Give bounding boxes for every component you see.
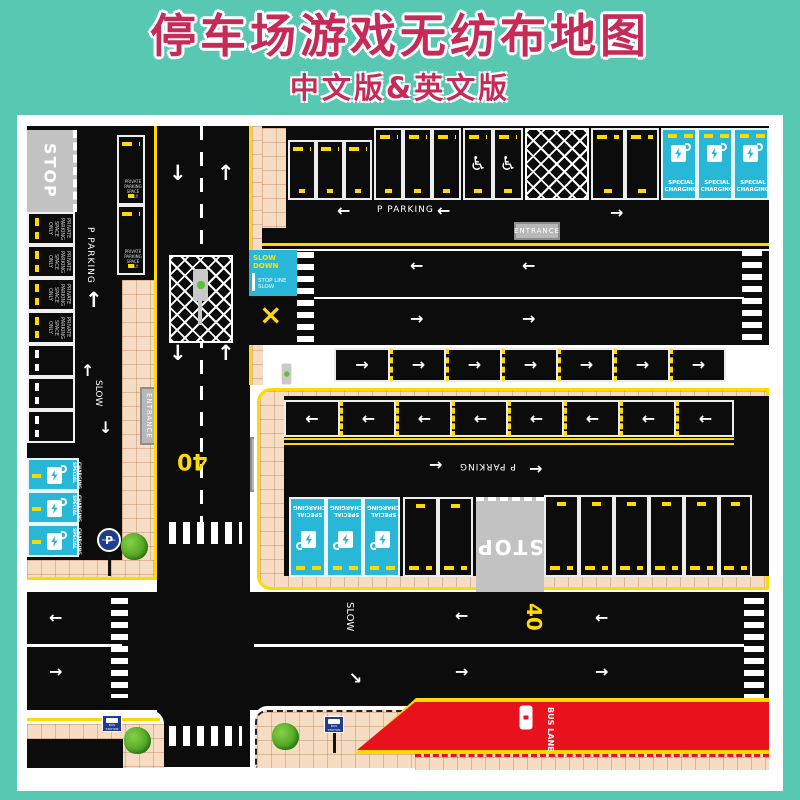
- slow-down-label: SLOW DOWN: [253, 254, 297, 270]
- parking-space: ←: [396, 400, 452, 437]
- parking-space: ←: [564, 400, 620, 437]
- page: { "header": { "title": "停车场游戏无纺布地图", "su…: [0, 0, 800, 800]
- parking-space: ←: [676, 400, 734, 437]
- lane-arrow: →: [355, 357, 368, 373]
- parking-space: PRIVATE PARKING SPACE ONLY: [117, 205, 145, 275]
- wheelchair-icon: ♿: [469, 153, 486, 175]
- parking-space: [374, 128, 403, 200]
- lane-arrow: ←: [522, 258, 535, 274]
- private-parking-label: PRIVATE PARKING SPACE ONLY: [47, 216, 71, 242]
- parking-space: ←: [340, 400, 396, 437]
- parking-space: →: [558, 348, 614, 382]
- lane-arrow: →: [580, 357, 593, 373]
- charging-label: SPECIALCHARGING: [328, 503, 365, 517]
- ev-charger-icon: [301, 531, 316, 548]
- header: 停车场游戏无纺布地图 中文版&英文版: [0, 10, 800, 107]
- stop-zone: STOP: [27, 130, 77, 212]
- charging-space: SPECIALCHARGING: [733, 128, 769, 200]
- curb: [27, 710, 164, 724]
- bus-station-sign: BUS STATION: [102, 715, 122, 732]
- entrance-label: ENTRANCE: [145, 393, 153, 439]
- bottom-road: [27, 592, 769, 710]
- parking-map: STOP PRIVATE PARKING SPACE ONLY PRIVATE …: [17, 115, 783, 791]
- parking-space: [288, 140, 316, 200]
- page-title: 停车场游戏无纺布地图: [0, 10, 800, 63]
- lane-arrow: ↑: [217, 163, 235, 184]
- zebra-crossing: [169, 522, 242, 544]
- parking-space: ←: [284, 400, 340, 437]
- parking-road-marking: P PARKING: [377, 205, 434, 215]
- lane-arrow: ↑: [217, 343, 235, 364]
- ev-charger-icon: [338, 531, 353, 548]
- lane-arrow: ↓: [169, 343, 187, 364]
- slow-marking: SLOW: [93, 380, 103, 406]
- lane-arrow: ←: [642, 411, 655, 427]
- charging-label: SPECIALCHARGING: [365, 503, 402, 517]
- parking-space: →: [670, 348, 726, 382]
- parking-space: [27, 377, 75, 410]
- charging-space: SPECIALCHARGING: [697, 128, 733, 200]
- ev-charger-icon: [707, 145, 722, 162]
- ev-charger-icon: [47, 500, 62, 517]
- curb-line: [27, 718, 160, 721]
- space-dash: [32, 507, 44, 511]
- lane-arrow: →: [429, 457, 442, 473]
- zebra-crossing: [742, 250, 762, 378]
- lane-arrow: ←: [305, 411, 318, 427]
- lane-arrow: ←: [437, 203, 450, 219]
- bus-lane: [357, 702, 769, 750]
- parking-space: [591, 128, 625, 200]
- crosshatch-area: [525, 128, 589, 200]
- stop-line-slow-label: STOP LINE SLOW: [258, 278, 297, 290]
- lane-arrow: ↑: [85, 290, 103, 311]
- lane-divider: [314, 297, 744, 299]
- parking-sign: PPARKING: [97, 528, 121, 576]
- parking-space: [27, 410, 75, 443]
- road-edge-line: [154, 126, 157, 577]
- space-dash: [32, 474, 44, 478]
- parking-space: PRIVATE PARKING SPACE ONLY: [27, 278, 75, 311]
- bus-station-label: BUS STATION: [325, 724, 343, 732]
- charging-label: SPECIALCHARGING: [291, 503, 328, 517]
- parking-space: [344, 140, 372, 200]
- traffic-light-pole: [198, 301, 202, 325]
- private-parking-label: PRIVATE PARKING SPACE ONLY: [121, 249, 145, 269]
- lane-arrow: →: [455, 664, 468, 680]
- parking-sign-word: PARKING: [102, 538, 115, 542]
- charging-space: SPECIALCHARGING: [326, 497, 363, 577]
- lane-arrow: ←: [337, 203, 350, 219]
- ev-charger-icon: [47, 533, 62, 550]
- space-dash: [296, 566, 323, 570]
- traffic-light: [193, 269, 208, 301]
- parking-space: [432, 128, 461, 200]
- lane-arrow: ↓: [169, 163, 187, 184]
- wheelchair-space: ♿: [463, 128, 493, 200]
- parking-space: PRIVATE PARKING SPACE ONLY: [27, 245, 75, 278]
- lane-arrow: ←: [530, 411, 543, 427]
- parking-space: [649, 495, 684, 577]
- tree: [124, 727, 151, 754]
- lane-arrow: ←: [586, 411, 599, 427]
- sidewalk: [262, 128, 286, 228]
- lane-arrow: ←: [418, 411, 431, 427]
- slow-marking: SLOW: [344, 602, 355, 631]
- parking-space: [27, 344, 75, 377]
- space-dash: [370, 566, 397, 570]
- lot-line: [284, 438, 734, 440]
- zebra-crossing: [111, 598, 128, 698]
- ev-charger-icon: [375, 531, 390, 548]
- parking-space: [316, 140, 344, 200]
- parking-space: [719, 495, 752, 577]
- sidewalk: [27, 560, 157, 577]
- lane-arrow: →: [610, 205, 623, 221]
- no-stopping-x-marking: ×: [259, 301, 282, 329]
- zebra-crossing: [297, 252, 314, 377]
- charging-label: CHARGING: [75, 528, 81, 555]
- lane-arrow: →: [529, 461, 542, 477]
- lane-arrow: →: [524, 357, 537, 373]
- parking-space: PRIVATE PARKING SPACE ONLY: [117, 135, 145, 205]
- zebra-crossing: [744, 598, 764, 703]
- lane-divider: [27, 644, 122, 647]
- bus-icon: [520, 706, 533, 730]
- charging-space: SPECIALCHARGING: [289, 497, 326, 577]
- parking-space: →: [446, 348, 502, 382]
- private-parking-label: PRIVATE PARKING SPACE ONLY: [47, 249, 71, 275]
- side-area: [27, 739, 123, 768]
- wheelchair-space: ♿: [493, 128, 523, 200]
- lane-arrow: ←: [699, 411, 712, 427]
- road-edge-line: [262, 249, 769, 251]
- stop-zone: STOP: [476, 497, 544, 593]
- charging-label: CHARGING: [75, 462, 81, 489]
- private-parking-label: PRIVATE PARKING SPACE ONLY: [121, 179, 145, 199]
- lane-arrow: ←: [455, 608, 468, 624]
- parking-space: [625, 128, 659, 200]
- parking-space: →: [502, 348, 558, 382]
- parking-space: [684, 495, 719, 577]
- zebra-crossing: [169, 726, 242, 746]
- lane-arrow: →: [692, 357, 705, 373]
- lane-arrow: →: [522, 311, 535, 327]
- parking-space: →: [334, 348, 390, 382]
- space-dash: [32, 540, 44, 544]
- space-dash: [668, 134, 694, 138]
- bus-lane-label: BUS LANE: [545, 707, 556, 752]
- lane-arrow: →: [49, 664, 62, 680]
- lane-arrow: →: [595, 664, 608, 680]
- charging-label: SPECIALCHARGING: [663, 180, 699, 194]
- space-dash: [740, 134, 766, 138]
- parking-space: [403, 497, 438, 577]
- lane-arrow: ←: [49, 610, 62, 626]
- lane-arrow: →: [636, 357, 649, 373]
- charging-space: SPECIALCHARGING: [363, 497, 400, 577]
- sidewalk: [415, 754, 769, 770]
- wheelchair-icon: ♿: [499, 153, 516, 175]
- charging-space: SPECIAL CHARGING: [27, 458, 79, 491]
- curb-line: [27, 577, 157, 580]
- space-dash: [704, 134, 730, 138]
- charging-space: SPECIAL CHARGING: [27, 524, 79, 557]
- ev-charger-icon: [743, 145, 758, 162]
- lane-divider: [254, 644, 744, 647]
- speed-limit-marking: 40: [522, 603, 546, 631]
- tree: [121, 533, 148, 560]
- lane-arrow: ←: [410, 258, 423, 274]
- parking-space: [544, 495, 579, 577]
- parking-road-marking: P PARKING: [85, 227, 95, 284]
- hatched-box: [169, 255, 233, 343]
- stop-zone-label: STOP: [476, 535, 544, 559]
- charging-label: CHARGING: [75, 495, 81, 522]
- lane-arrow: →: [412, 357, 425, 373]
- entrance-label: ENTRANCE: [514, 227, 560, 235]
- parking-space: →: [614, 348, 670, 382]
- private-parking-label: PRIVATE PARKING SPACE ONLY: [47, 282, 71, 308]
- lane-arrow: ↑: [81, 363, 94, 379]
- parking-space: PRIVATE PARKING SPACE ONLY: [27, 311, 75, 344]
- speed-limit-marking: 40: [177, 448, 208, 473]
- parking-space: [614, 495, 649, 577]
- entrance-sign: ENTRANCE: [514, 222, 560, 240]
- lane-arrow: ↓: [99, 420, 112, 436]
- lane-arrow: →: [410, 311, 423, 327]
- sign-post: [333, 733, 336, 753]
- road-edge-line: [262, 243, 769, 246]
- lane-arrow: ←: [474, 411, 487, 427]
- traffic-light: [282, 364, 292, 385]
- charging-space: SPECIALCHARGING: [661, 128, 697, 200]
- tree: [272, 723, 299, 750]
- lane-arrow: →: [468, 357, 481, 373]
- parking-space: →: [390, 348, 446, 382]
- lane-arrow: ←: [595, 610, 608, 626]
- page-subtitle: 中文版&英文版: [0, 65, 800, 107]
- charging-label: SPECIALCHARGING: [699, 180, 735, 194]
- parking-space: [438, 497, 473, 577]
- space-dash: [333, 566, 360, 570]
- lane-arrow: ←: [362, 411, 375, 427]
- ev-charger-icon: [671, 145, 686, 162]
- parking-space: ←: [620, 400, 676, 437]
- bus-station-label: BUS STATION: [103, 723, 121, 731]
- parking-space: ←: [452, 400, 508, 437]
- slow-down-sign: SLOW DOWN STOP LINE SLOW: [249, 250, 297, 296]
- parking-road-marking: P PARKING: [459, 461, 516, 471]
- charging-space: SPECIAL CHARGING: [27, 491, 79, 524]
- private-parking-label: PRIVATE PARKING SPACE ONLY: [47, 315, 71, 341]
- lot-line: [284, 443, 734, 445]
- bus-station-sign: BUS STATION: [324, 716, 344, 733]
- parking-space: ←: [508, 400, 564, 437]
- parking-space: [403, 128, 432, 200]
- ev-charger-icon: [47, 467, 62, 484]
- charging-label: SPECIALCHARGING: [735, 180, 771, 194]
- stop-zone-label: STOP: [41, 143, 60, 199]
- parking-space: PRIVATE PARKING SPACE ONLY: [27, 212, 75, 245]
- parking-space: [579, 495, 614, 577]
